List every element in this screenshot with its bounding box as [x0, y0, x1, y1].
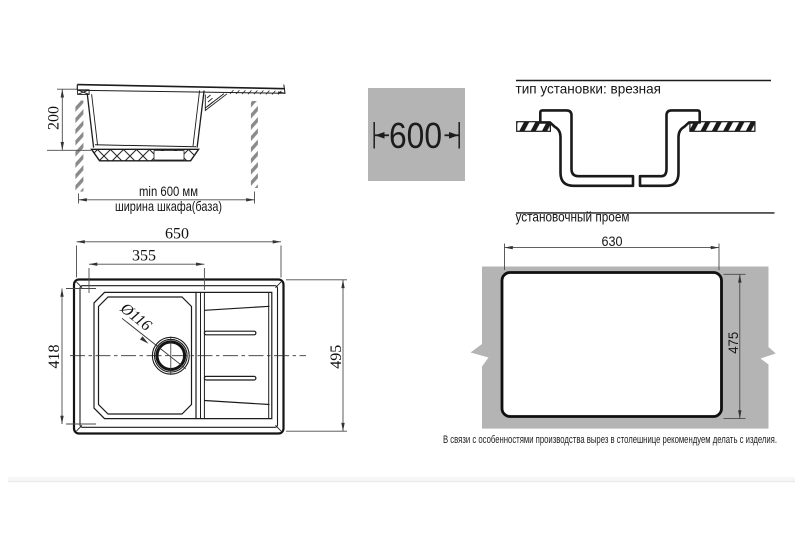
- svg-text:600: 600: [389, 115, 442, 156]
- svg-text:650: 650: [165, 226, 189, 243]
- svg-text:В связи с особенностями произв: В связи с особенностями производства выр…: [443, 434, 777, 446]
- svg-text:min 600 мм: min 600 мм: [139, 184, 198, 199]
- svg-text:установочный проем: установочный проем: [516, 210, 630, 225]
- svg-text:495: 495: [328, 345, 345, 369]
- svg-text:475: 475: [726, 331, 741, 353]
- svg-text:ширина шкафа(база): ширина шкафа(база): [115, 199, 222, 214]
- svg-text:200: 200: [46, 106, 63, 130]
- svg-text:тип установки: врезная: тип установки: врезная: [516, 82, 662, 97]
- svg-text:418: 418: [46, 345, 63, 369]
- svg-text:355: 355: [132, 248, 156, 265]
- svg-text:630: 630: [602, 234, 623, 249]
